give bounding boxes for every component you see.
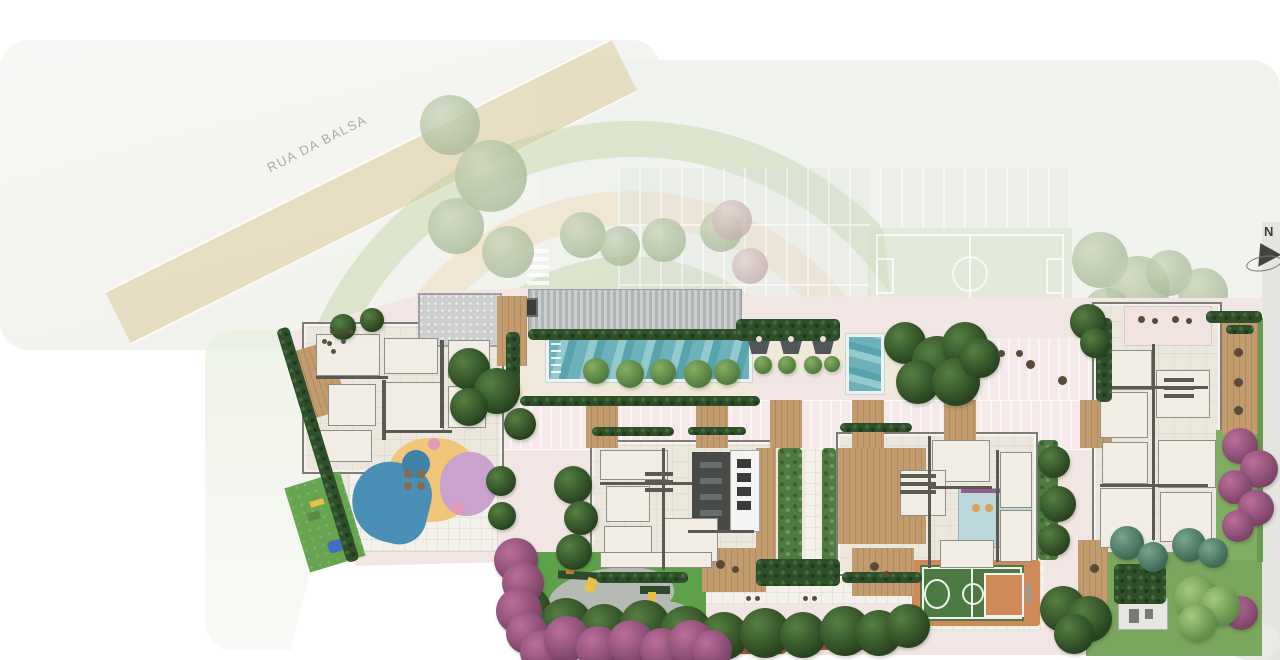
multisport-court [912,560,1040,626]
tree [560,212,606,258]
furniture-dot [330,329,335,334]
hedge-strip [1226,325,1254,334]
hedge-strip [1206,311,1262,323]
equipment-rect [737,501,751,510]
furniture-dot [339,329,344,334]
site-plan-illustration: RUA DA BALSA [0,0,1280,660]
tree [714,359,740,385]
shed-door [1129,609,1139,623]
planting-bed [778,448,802,572]
furniture-dot [985,504,993,512]
tree [1080,328,1110,358]
tree [554,466,592,504]
tree [1138,542,1168,572]
furniture-dot [322,339,327,344]
court-center-circle [962,583,984,605]
tree [1040,486,1076,522]
wall-segment [900,490,936,494]
wall-segment [1100,484,1208,487]
tree [450,388,488,426]
tree [360,308,384,332]
wall-segment [1164,378,1194,382]
apartment-room [1158,440,1216,488]
furniture-dot [998,350,1005,357]
furniture-dot [1172,316,1179,323]
wall-segment [928,436,931,568]
hedge-strip [520,396,760,406]
field-center-circle [952,256,988,292]
wall-segment [382,430,452,433]
hedge-strip [840,423,912,432]
right-edge-area [1262,222,1280,660]
furniture-dot [327,341,332,346]
furniture-dot [1234,378,1243,387]
wall-segment [440,340,444,428]
tree [556,534,592,570]
wall-segment [645,488,673,492]
hedge-strip [688,427,746,435]
furniture-dot [732,566,739,573]
gym-equipment-mark [700,510,722,516]
equipment-rect [737,473,751,482]
furniture-dot [404,470,412,478]
field-goal-box [1046,258,1064,294]
gym-equipment-mark [700,478,722,484]
apartment-room [1102,442,1148,484]
wall-segment [930,486,992,489]
wall-segment [1152,344,1155,540]
tree [486,466,516,496]
tree [1178,604,1216,642]
wall-segment [1164,386,1194,390]
hedge-strip [756,559,840,586]
parking-lane-line [618,284,870,286]
gym-equipment-mark [700,462,722,468]
furniture-dot [755,596,760,601]
wood-deck [696,400,728,448]
equipment-panel [730,450,760,532]
furniture-dot [1234,406,1243,415]
furniture-dot [1186,318,1192,324]
furniture-dot [341,339,346,344]
wall-segment [662,448,665,570]
tree [650,359,676,385]
furniture-dot [404,482,412,490]
furniture-dot [788,336,794,342]
tree [804,356,822,374]
wall-segment [316,376,388,379]
wall-segment [688,530,754,533]
court-key-area [984,573,1024,617]
tree [583,358,609,384]
hedge-strip [528,329,754,340]
furniture-dot [883,571,890,578]
gym-equipment-mark [700,494,722,500]
furniture-dot [1152,318,1158,324]
tree [482,226,534,278]
playroom-shelf [961,489,1001,493]
tree [616,360,644,388]
equipment-rect [737,487,751,496]
tree [488,502,516,530]
wall-segment [900,474,936,478]
wall-segment [1164,394,1194,398]
tree [780,612,826,658]
tree [564,501,598,535]
furniture-dot [331,349,336,354]
court-arc [924,579,950,609]
flower-accent [452,502,465,515]
apartment-room [328,384,376,426]
tree [824,356,840,372]
furniture-dot [1026,360,1035,369]
flowering-tree [1222,510,1254,542]
court-field [920,565,1024,621]
parking-lot [880,168,1070,228]
apartment-room [940,540,994,568]
furniture-dot [1016,350,1023,357]
hedge-strip [592,427,674,436]
hedge-strip [596,572,688,583]
apartment-room [606,486,650,522]
apartment-room [1000,510,1032,562]
planting-bed [822,448,836,572]
tree [754,356,772,374]
hedge-strip [842,572,922,583]
furniture-dot [870,562,879,571]
furniture-dot [417,482,425,490]
tree [778,356,796,374]
tree [684,360,712,388]
basketball-hoop [1026,584,1031,602]
shed-window [1145,609,1153,619]
furniture-dot [803,596,808,601]
tree [1054,614,1094,654]
tree [960,338,1000,378]
compass-north: N [1238,222,1280,274]
tree [428,198,484,254]
tree [886,604,930,648]
furniture-dot [1090,564,1099,573]
furniture-dot [756,336,762,342]
apartment-room [1000,452,1032,508]
field-goal-box [876,258,894,294]
tree [504,408,536,440]
equipment-rect [737,459,751,468]
furniture-dot [417,470,425,478]
flower-accent [428,438,440,450]
furniture-dot [972,504,980,512]
tree [732,248,768,284]
wall-segment [996,450,999,562]
apartment-room [600,552,712,568]
tree [330,314,356,340]
tree [600,226,640,266]
wall-segment [645,472,673,476]
wall-segment [900,482,936,486]
tree [1198,538,1228,568]
compass-ring-icon [1245,253,1280,274]
tree [642,218,686,262]
wall-segment [645,480,673,484]
tree [1038,446,1070,478]
apartment-room [384,338,438,374]
furniture-dot [1058,376,1067,385]
furniture-dot [820,336,826,342]
furniture-dot [1138,316,1145,323]
wood-deck [770,400,802,448]
wood-deck [586,400,618,448]
kids-pool [846,334,884,394]
pool-steps [551,341,561,373]
furniture-dot [812,596,817,601]
furniture-dot [1234,348,1243,357]
apartment-room [384,382,444,432]
furniture-dot [746,596,751,601]
furniture-dot [348,329,353,334]
walk-between-towers [804,448,820,572]
tree [1038,524,1070,556]
tower-d-roof-terrace [1124,306,1212,346]
furniture-dot [716,560,725,569]
tree [712,200,752,240]
